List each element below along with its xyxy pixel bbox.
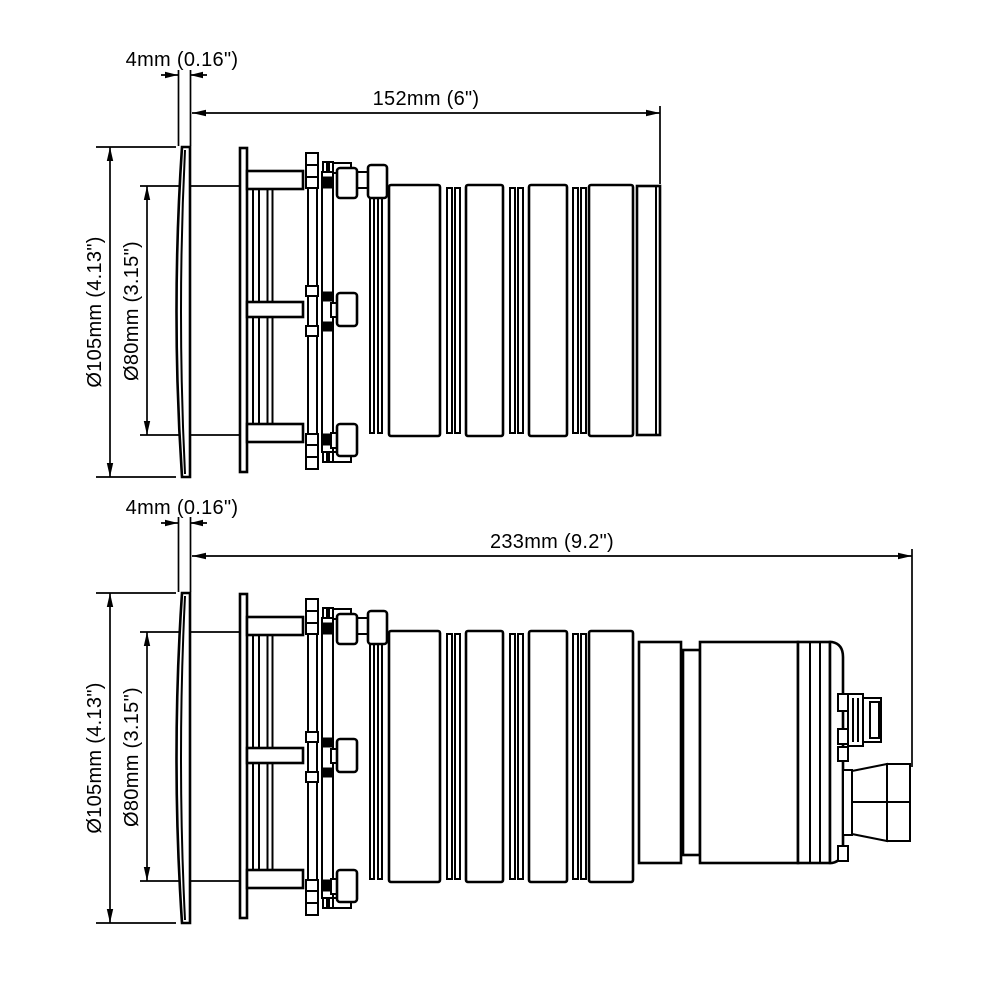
rear-housing <box>700 642 798 863</box>
technical-drawing: Ø105mm (4.13") Ø80mm (3.15") 4mm (0.16")… <box>0 0 1000 1000</box>
dim-label-overall-length: 233mm (9.2") <box>490 531 614 553</box>
dim-flange-thickness-long: 4mm (0.16") <box>126 497 239 526</box>
front-assembly-long <box>177 593 634 923</box>
dim-flange-diameter-long: Ø105mm (4.13") <box>84 593 113 923</box>
view-long: Ø105mm (4.13") Ø80mm (3.15") 4mm (0.16")… <box>84 497 912 923</box>
rear-connector <box>848 694 881 746</box>
dim-label-overall-length: 152mm (6") <box>373 88 480 110</box>
rear-section <box>639 642 910 863</box>
end-collar-short <box>637 186 660 435</box>
view-short: Ø105mm (4.13") Ø80mm (3.15") 4mm (0.16")… <box>84 49 660 477</box>
drawing-canvas: Ø105mm (4.13") Ø80mm (3.15") 4mm (0.16")… <box>0 0 1000 1000</box>
dim-label-flange-thickness: 4mm (0.16") <box>126 49 239 71</box>
dim-body-diameter-long: Ø80mm (3.15") <box>121 632 150 881</box>
rear-collar <box>639 642 681 863</box>
dim-label-flange-thickness: 4mm (0.16") <box>126 497 239 519</box>
dim-label-flange-diameter: Ø105mm (4.13") <box>84 236 106 387</box>
cable-gland <box>843 764 910 841</box>
dim-label-body-diameter: Ø80mm (3.15") <box>121 687 143 827</box>
rear-neck-collar <box>683 650 700 855</box>
dim-flange-thickness-short: 4mm (0.16") <box>126 49 239 78</box>
dim-overall-length-short: 152mm (6") <box>192 88 660 116</box>
dim-body-diameter-short: Ø80mm (3.15") <box>121 186 150 435</box>
dim-label-body-diameter: Ø80mm (3.15") <box>121 241 143 381</box>
rear-ring-section <box>798 642 830 863</box>
dim-label-flange-diameter: Ø105mm (4.13") <box>84 682 106 833</box>
dim-overall-length-long: 233mm (9.2") <box>192 531 912 559</box>
front-assembly-short <box>177 147 634 477</box>
dim-flange-diameter-short: Ø105mm (4.13") <box>84 147 113 477</box>
